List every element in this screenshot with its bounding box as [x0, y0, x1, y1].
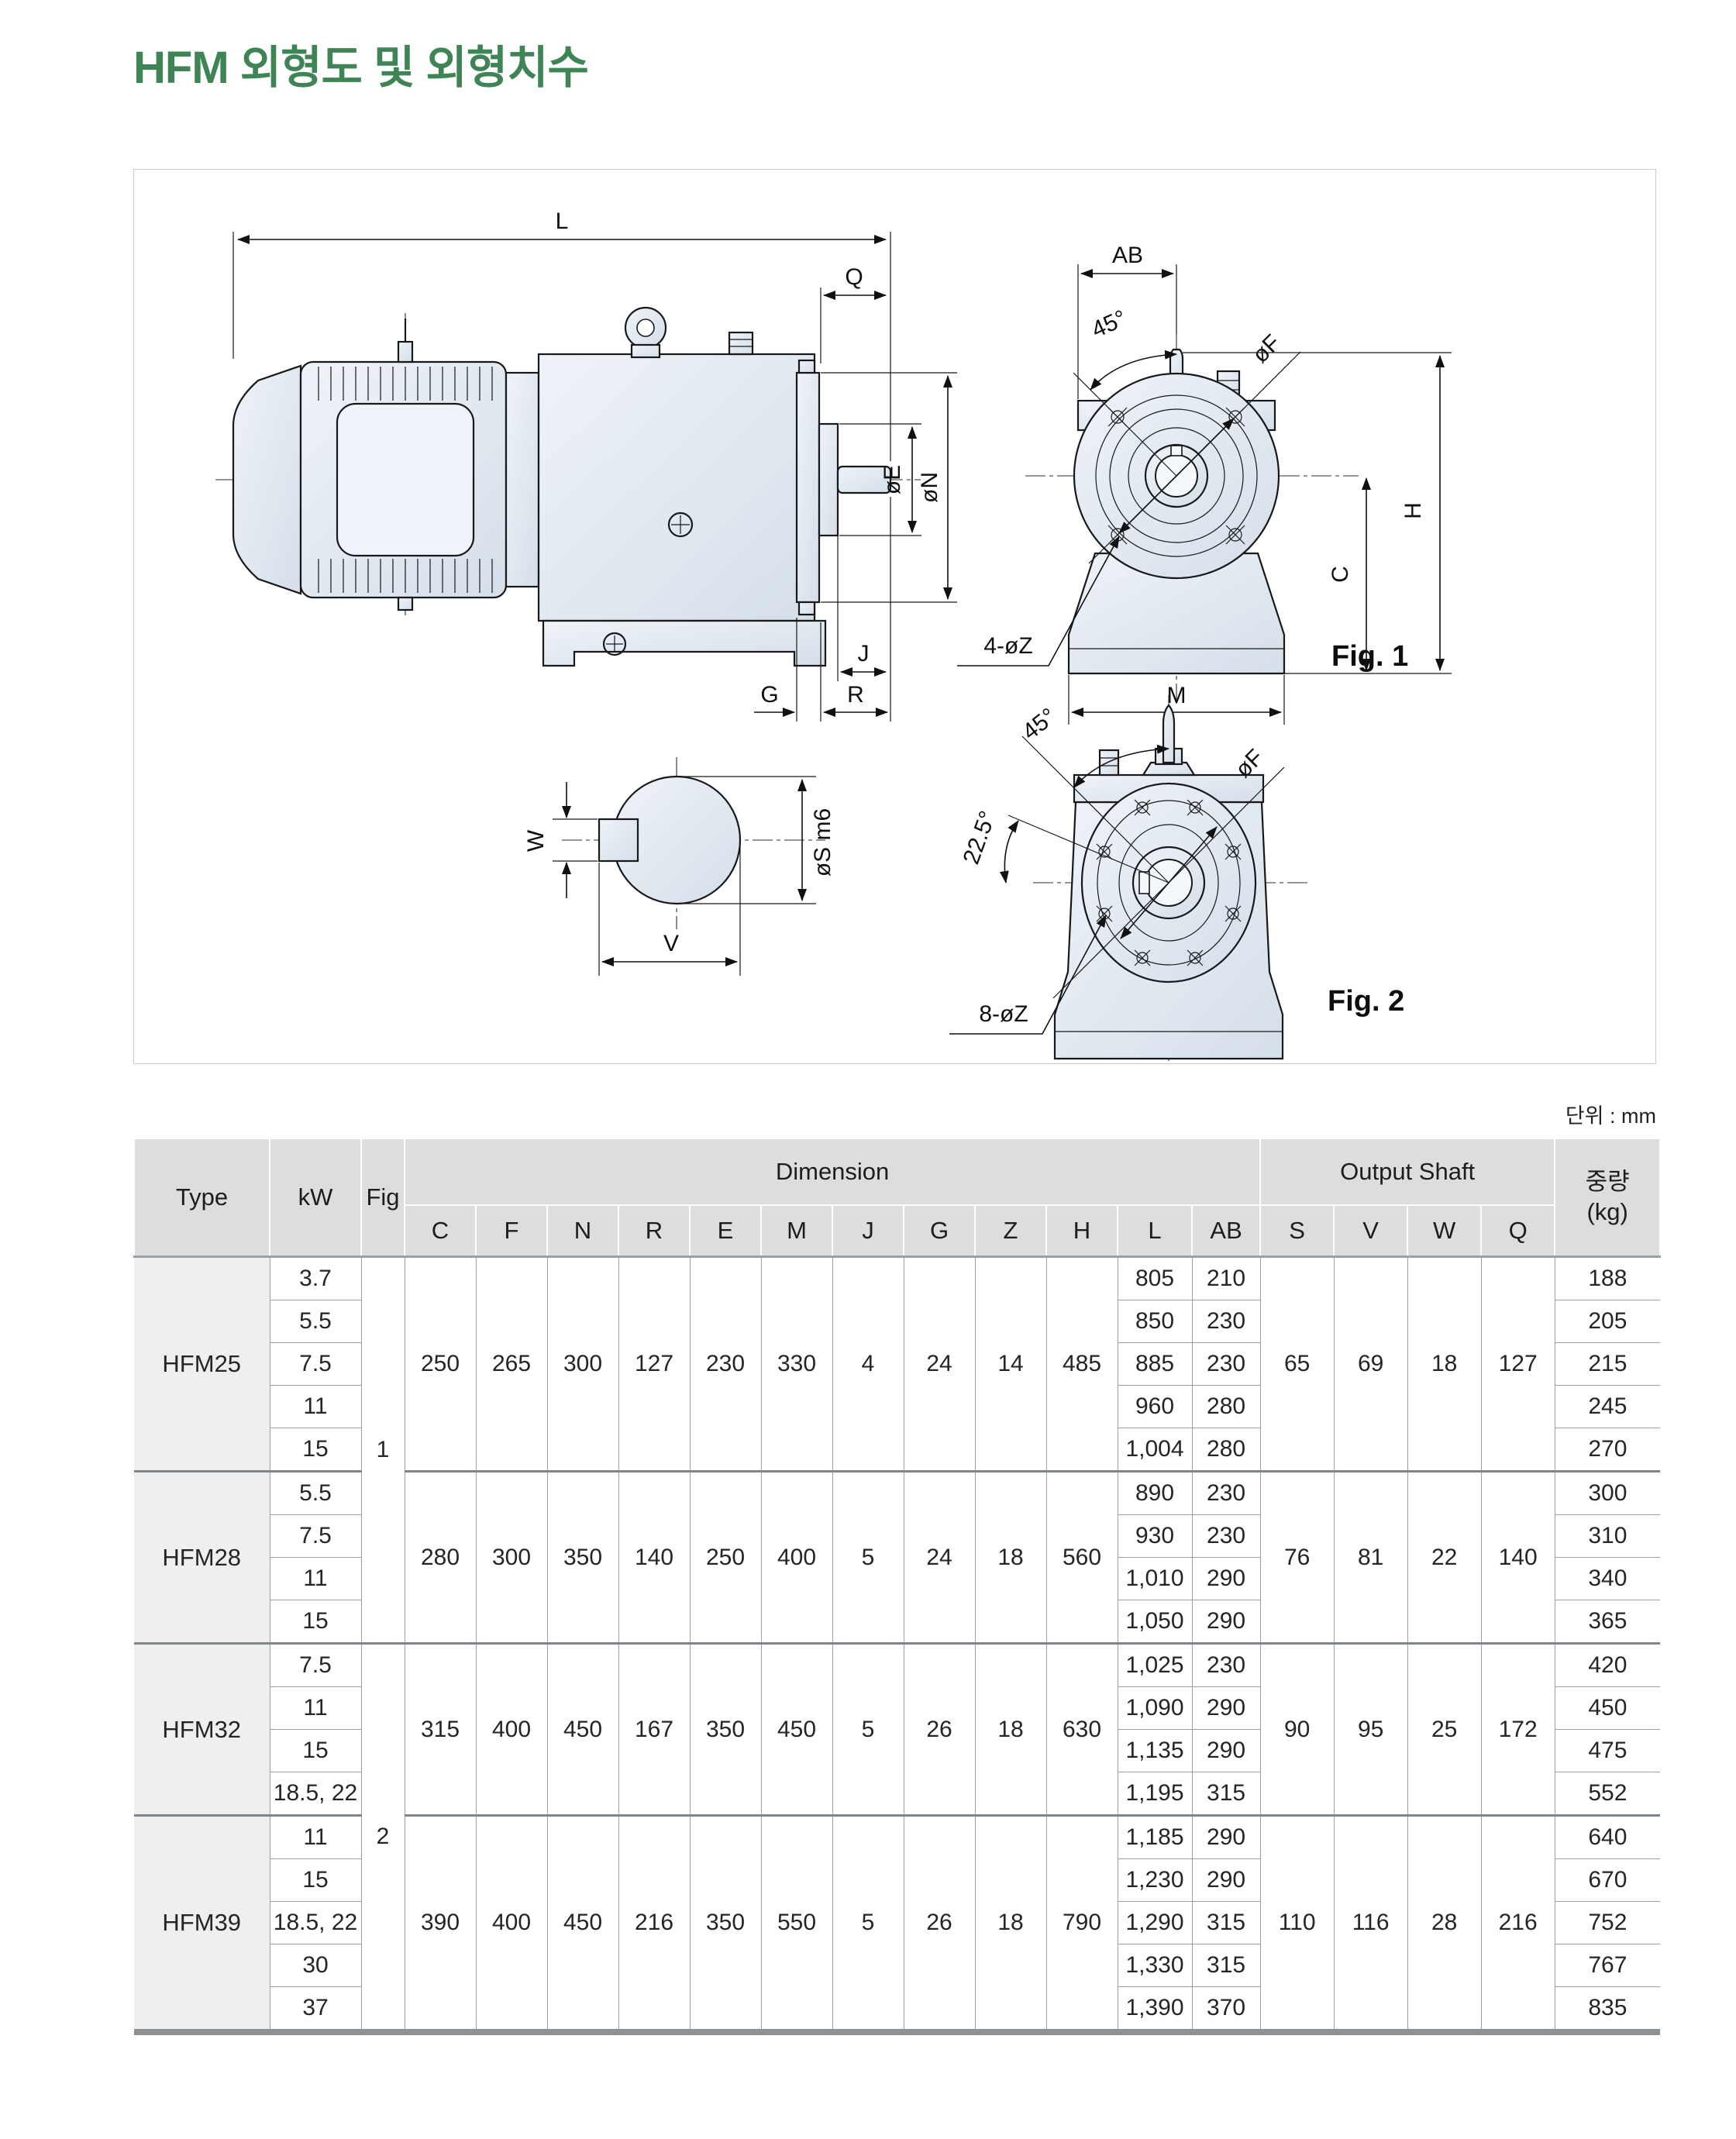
kw-cell: 7.5 [270, 1515, 361, 1558]
shaft-V-cell: 69 [1334, 1257, 1407, 1472]
col-header-V: V [1334, 1205, 1407, 1257]
kw-cell: 15 [270, 1730, 361, 1772]
weight-cell: 215 [1555, 1343, 1660, 1386]
oil-plug [729, 332, 753, 354]
dim-label-M: M [1167, 683, 1187, 708]
kw-cell: 11 [270, 1687, 361, 1730]
dim-L-cell: 1,330 [1118, 1944, 1192, 1987]
col-header-Z: Z [975, 1205, 1046, 1257]
dim-L-cell: 1,290 [1118, 1902, 1192, 1944]
kw-cell: 37 [270, 1987, 361, 2033]
col-header-AB: AB [1192, 1205, 1260, 1257]
fig2-plug [1100, 750, 1118, 775]
dim-AB-cell: 370 [1192, 1987, 1260, 2033]
kw-cell: 5.5 [270, 1300, 361, 1343]
dim-H-cell: 485 [1046, 1257, 1118, 1472]
dim-R-cell: 140 [618, 1472, 690, 1644]
dim-label-V: V [663, 931, 679, 956]
col-header-weight: 중량 (kg) [1555, 1138, 1660, 1257]
dim-L-cell: 890 [1118, 1472, 1192, 1515]
weight-cell: 245 [1555, 1386, 1660, 1428]
col-header-H: H [1046, 1205, 1118, 1257]
shaft-V-cell: 81 [1334, 1472, 1407, 1644]
dim-H-cell: 630 [1046, 1644, 1118, 1816]
kw-cell: 7.5 [270, 1343, 361, 1386]
dim-L-cell: 1,025 [1118, 1644, 1192, 1687]
weight-cell: 365 [1555, 1600, 1660, 1644]
dim-F-cell: 265 [476, 1257, 547, 1472]
dim-label-G: G [760, 682, 778, 708]
shaft-key [599, 819, 638, 861]
dim-AB-cell: 290 [1192, 1859, 1260, 1902]
dim-label-Q: Q [845, 264, 863, 290]
dim-L-cell: 885 [1118, 1343, 1192, 1386]
shaft-S-cell: 76 [1260, 1472, 1334, 1644]
shaft-Q-cell: 216 [1481, 1816, 1555, 2033]
shaft-V-cell: 116 [1334, 1816, 1407, 2033]
dim-AB-cell: 315 [1192, 1772, 1260, 1816]
mounting-base [543, 621, 825, 666]
col-header-S: S [1260, 1205, 1334, 1257]
unit-note: 단위 : mm [133, 1099, 1656, 1129]
shaft-S-cell: 65 [1260, 1257, 1334, 1472]
dim-N-cell: 300 [547, 1257, 618, 1472]
weight-cell: 188 [1555, 1257, 1660, 1300]
dim-F-cell: 400 [476, 1644, 547, 1816]
kw-cell: 11 [270, 1816, 361, 1859]
dim-C-cell: 315 [405, 1644, 476, 1816]
dim-H-cell: 560 [1046, 1472, 1118, 1644]
dim-AB-cell: 230 [1192, 1472, 1260, 1515]
fig1-front-view: AB 45° øF H C M [957, 243, 1452, 725]
fig2-top-pin [1163, 705, 1174, 763]
fig1-bolt-label: 4-øZ [983, 633, 1032, 659]
shaft-section-drawing: W V øS m6 [523, 757, 835, 976]
table-row: HFM25 3.7 1 250 265 300 127 230 330 4 24… [134, 1257, 1660, 1300]
dim-J-cell: 5 [832, 1816, 904, 2033]
shaft-W-cell: 18 [1407, 1257, 1481, 1472]
dim-G-cell: 26 [904, 1816, 975, 2033]
dim-M-cell: 450 [761, 1644, 832, 1816]
dim-AB-cell: 290 [1192, 1816, 1260, 1859]
dim-label-R: R [847, 682, 864, 708]
dim-L-cell: 1,050 [1118, 1600, 1192, 1644]
dim-label-J: J [858, 641, 870, 666]
type-cell: HFM28 [134, 1472, 270, 1644]
dim-R-cell: 127 [618, 1257, 690, 1472]
dim-L-cell: 1,390 [1118, 1987, 1192, 2033]
weight-cell: 475 [1555, 1730, 1660, 1772]
dim-C-cell: 250 [405, 1257, 476, 1472]
kw-cell: 11 [270, 1386, 361, 1428]
weight-unit: (kg) [1555, 1197, 1659, 1228]
dim-G-cell: 26 [904, 1644, 975, 1816]
kw-cell: 7.5 [270, 1644, 361, 1687]
fig2-bolt-label: 8-øZ [979, 1001, 1028, 1027]
dim-L-cell: 1,090 [1118, 1687, 1192, 1730]
catalog-page: HFM 외형도 및 외형치수 [0, 0, 1736, 2139]
dim-AB-cell: 315 [1192, 1944, 1260, 1987]
kw-cell: 30 [270, 1944, 361, 1987]
dim-L-cell: 930 [1118, 1515, 1192, 1558]
dim-L-cell: 805 [1118, 1257, 1192, 1300]
weight-label: 중량 [1555, 1167, 1659, 1197]
col-header-R: R [618, 1205, 690, 1257]
group-header-dimension: Dimension [405, 1138, 1260, 1205]
gear-housing [539, 354, 815, 621]
fig2-front-view: 45° 22.5° øF 8-øZ Fig. 2 [949, 695, 1404, 1061]
group-header-output-shaft: Output Shaft [1260, 1138, 1555, 1205]
col-header-G: G [904, 1205, 975, 1257]
dim-AB-cell: 230 [1192, 1515, 1260, 1558]
dim-label-oN: øN [917, 472, 942, 503]
kw-cell: 11 [270, 1558, 361, 1600]
dim-G-cell: 24 [904, 1472, 975, 1644]
col-header-F: F [476, 1205, 547, 1257]
type-cell: HFM39 [134, 1816, 270, 2033]
shaft-Q-cell: 140 [1481, 1472, 1555, 1644]
dim-L-cell: 1,135 [1118, 1730, 1192, 1772]
dim-AB-cell: 290 [1192, 1687, 1260, 1730]
dim-Z-cell: 18 [975, 1644, 1046, 1816]
shaft-Q-cell: 127 [1481, 1257, 1555, 1472]
dim-AB-cell: 315 [1192, 1902, 1260, 1944]
dim-L-cell: 1,010 [1118, 1558, 1192, 1600]
dim-label-AB: AB [1112, 243, 1143, 268]
col-header-fig: Fig [361, 1138, 405, 1257]
dim-L-cell: 850 [1118, 1300, 1192, 1343]
weight-cell: 205 [1555, 1300, 1660, 1343]
dim-E-cell: 230 [690, 1257, 761, 1472]
side-view-drawing: L Q øE øN J G R [215, 208, 957, 722]
weight-cell: 752 [1555, 1902, 1660, 1944]
dim-F-cell: 400 [476, 1816, 547, 2033]
dim-label-H: H [1400, 502, 1426, 519]
dim-E-cell: 350 [690, 1816, 761, 2033]
weight-cell: 450 [1555, 1687, 1660, 1730]
dim-R-cell: 216 [618, 1816, 690, 2033]
col-header-kw: kW [270, 1138, 361, 1257]
dim-label-L: L [556, 208, 569, 234]
dim-F-cell: 300 [476, 1472, 547, 1644]
weight-cell: 340 [1555, 1558, 1660, 1600]
dim-label-C: C [1328, 566, 1353, 583]
dim-N-cell: 450 [547, 1816, 618, 2033]
fig2-caption: Fig. 2 [1328, 985, 1404, 1018]
dim-E-cell: 250 [690, 1472, 761, 1644]
fig1-keyway [1171, 446, 1182, 456]
output-flange [797, 373, 819, 602]
dim-Z-cell: 14 [975, 1257, 1046, 1472]
dim-C-cell: 280 [405, 1472, 476, 1644]
dim-M-cell: 550 [761, 1816, 832, 2033]
dim-J-cell: 5 [832, 1472, 904, 1644]
col-header-type: Type [134, 1138, 270, 1257]
col-header-J: J [832, 1205, 904, 1257]
shaft-Q-cell: 172 [1481, 1644, 1555, 1816]
col-header-L: L [1118, 1205, 1192, 1257]
col-header-W: W [1407, 1205, 1481, 1257]
dim-L-cell: 960 [1118, 1386, 1192, 1428]
dimension-table: Type kW Fig Dimension Output Shaft 중량 (k… [133, 1138, 1661, 2035]
weight-cell: 300 [1555, 1472, 1660, 1515]
kw-cell: 15 [270, 1859, 361, 1902]
dim-M-cell: 400 [761, 1472, 832, 1644]
kw-cell: 3.7 [270, 1257, 361, 1300]
dim-C-cell: 390 [405, 1816, 476, 2033]
fig1-caption: Fig. 1 [1331, 640, 1408, 673]
weight-cell: 670 [1555, 1859, 1660, 1902]
dim-R-cell: 167 [618, 1644, 690, 1816]
shaft-W-cell: 22 [1407, 1472, 1481, 1644]
dim-J-cell: 4 [832, 1257, 904, 1472]
dim-AB-cell: 230 [1192, 1644, 1260, 1687]
col-header-N: N [547, 1205, 618, 1257]
dim-AB-cell: 280 [1192, 1428, 1260, 1472]
shaft-S-cell: 90 [1260, 1644, 1334, 1816]
dim-N-cell: 450 [547, 1644, 618, 1816]
dim-G-cell: 24 [904, 1257, 975, 1472]
col-header-E: E [690, 1205, 761, 1257]
dim-AB-cell: 290 [1192, 1600, 1260, 1644]
dim-AB-cell: 290 [1192, 1558, 1260, 1600]
dim-E-cell: 350 [690, 1644, 761, 1816]
motor-fan-cover [233, 366, 301, 594]
weight-cell: 270 [1555, 1428, 1660, 1472]
dim-AB-cell: 210 [1192, 1257, 1260, 1300]
kw-cell: 15 [270, 1428, 361, 1472]
shaft-W-cell: 28 [1407, 1816, 1481, 2033]
weight-cell: 640 [1555, 1816, 1660, 1859]
technical-drawing: L Q øE øN J G R [134, 170, 1655, 1063]
fig2-angle225-label: 22.5° [959, 808, 1001, 867]
shaft-W-cell: 25 [1407, 1644, 1481, 1816]
dim-Z-cell: 18 [975, 1472, 1046, 1644]
weight-cell: 310 [1555, 1515, 1660, 1558]
fig-cell: 1 [361, 1257, 405, 1644]
dim-label-W: W [523, 829, 549, 852]
type-cell: HFM32 [134, 1644, 270, 1816]
drawing-panel: L Q øE øN J G R [133, 169, 1656, 1064]
col-header-M: M [761, 1205, 832, 1257]
dim-H-cell: 790 [1046, 1816, 1118, 2033]
dim-N-cell: 350 [547, 1472, 618, 1644]
fig2-angle45-label: 45° [1018, 704, 1061, 746]
kw-cell: 5.5 [270, 1472, 361, 1515]
fig1-angle45-label: 45° [1088, 305, 1131, 343]
dim-M-cell: 330 [761, 1257, 832, 1472]
fig-cell: 2 [361, 1644, 405, 2033]
col-header-C: C [405, 1205, 476, 1257]
dim-label-oE: øE [880, 465, 905, 494]
weight-cell: 835 [1555, 1987, 1660, 2033]
dim-L-cell: 1,185 [1118, 1816, 1192, 1859]
kw-cell: 18.5, 22 [270, 1902, 361, 1944]
fig2-keyway [1139, 872, 1149, 894]
dim-L-cell: 1,004 [1118, 1428, 1192, 1472]
weight-cell: 767 [1555, 1944, 1660, 1987]
dim-L-cell: 1,195 [1118, 1772, 1192, 1816]
table-row: HFM32 7.5 2 315 400 450 167 350 450 5 26… [134, 1644, 1660, 1687]
weight-cell: 552 [1555, 1772, 1660, 1816]
dim-AB-cell: 230 [1192, 1300, 1260, 1343]
dim-J-cell: 5 [832, 1644, 904, 1816]
shaft-S-cell: 110 [1260, 1816, 1334, 2033]
page-title: HFM 외형도 및 외형치수 [133, 31, 588, 96]
weight-cell: 420 [1555, 1644, 1660, 1687]
dim-L-cell: 1,230 [1118, 1859, 1192, 1902]
fig1-oF-label: øF [1248, 330, 1286, 368]
dim-Z-cell: 18 [975, 1816, 1046, 2033]
kw-cell: 18.5, 22 [270, 1772, 361, 1816]
kw-cell: 15 [270, 1600, 361, 1644]
dim-AB-cell: 290 [1192, 1730, 1260, 1772]
shaft-V-cell: 95 [1334, 1644, 1407, 1816]
type-cell: HFM25 [134, 1257, 270, 1472]
col-header-Q: Q [1481, 1205, 1555, 1257]
dim-AB-cell: 280 [1192, 1386, 1260, 1428]
dim-label-oS: øS m6 [810, 808, 835, 877]
dim-AB-cell: 230 [1192, 1343, 1260, 1386]
